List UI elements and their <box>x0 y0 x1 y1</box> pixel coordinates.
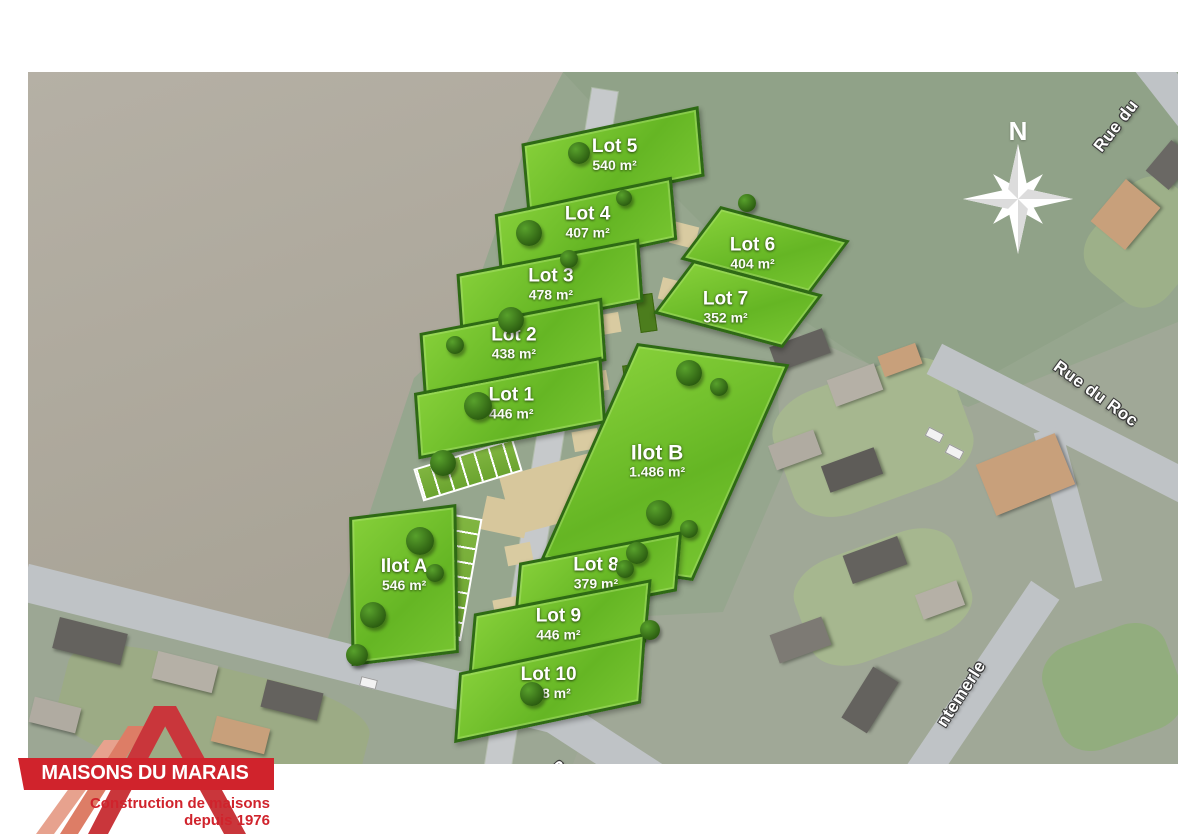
tree <box>616 190 632 206</box>
lot-name-label: Lot 5 <box>591 137 636 157</box>
tree <box>520 682 544 706</box>
ilot-a: Ilot A 546 m² <box>349 504 459 666</box>
lot-name-label: Lot 3 <box>528 266 573 286</box>
logo-subtitle-line2: depuis 1976 <box>18 812 270 829</box>
lot-area-label: 446 m² <box>488 406 533 422</box>
logo-subtitle-line1: Construction de maisons <box>18 795 270 812</box>
site-plan-page: Lot 5 540 m² Lot 4 407 m² Lot 3 478 m² L… <box>0 0 1200 836</box>
lot-area-label: 352 m² <box>703 309 748 325</box>
compass-north-label: N <box>958 118 1078 144</box>
tree <box>498 307 524 333</box>
tree <box>560 250 578 268</box>
tree <box>676 360 702 386</box>
tree <box>430 450 456 476</box>
tree <box>346 644 368 666</box>
tree <box>360 602 386 628</box>
compass-rose-icon <box>963 144 1073 254</box>
tree <box>568 142 590 164</box>
lot-name-label: Lot 9 <box>535 606 580 626</box>
lot-area-label: 540 m² <box>591 157 636 173</box>
lot-area-label: 404 m² <box>730 255 775 271</box>
lot-name-label: Lot 7 <box>703 289 748 309</box>
lot-area-label: 446 m² <box>535 626 580 642</box>
tree <box>426 564 444 582</box>
maisons-du-marais-logo: MAISONS DU MARAIS Construction de maison… <box>8 700 288 834</box>
tree <box>640 620 660 640</box>
lot-area-label: 478 m² <box>528 286 573 302</box>
lot-area-label: 1.486 m² <box>629 463 685 479</box>
lot-name-label: Ilot B <box>629 443 685 463</box>
tree <box>464 392 492 420</box>
lot-name-label: Lot 8 <box>573 555 618 575</box>
tree <box>616 560 634 578</box>
lot-area-label: 407 m² <box>564 224 609 240</box>
tree <box>738 194 756 212</box>
tree <box>516 220 542 246</box>
compass-rose: N <box>958 118 1078 258</box>
logo-title: MAISONS DU MARAIS <box>20 762 270 785</box>
aerial-map: Lot 5 540 m² Lot 4 407 m² Lot 3 478 m² L… <box>28 72 1178 764</box>
lot-name-label: Lot 1 <box>488 386 533 406</box>
lot-name-label: Ilot A <box>381 557 428 577</box>
tree <box>646 500 672 526</box>
tree <box>406 527 434 555</box>
tree <box>710 378 728 396</box>
lot-name-label: Lot 4 <box>564 204 609 224</box>
lot-area-label: 438 m² <box>491 345 536 361</box>
lot-name-label: Lot 6 <box>730 235 775 255</box>
tree <box>446 336 464 354</box>
tree <box>680 520 698 538</box>
lot-area-label: 546 m² <box>381 577 428 593</box>
